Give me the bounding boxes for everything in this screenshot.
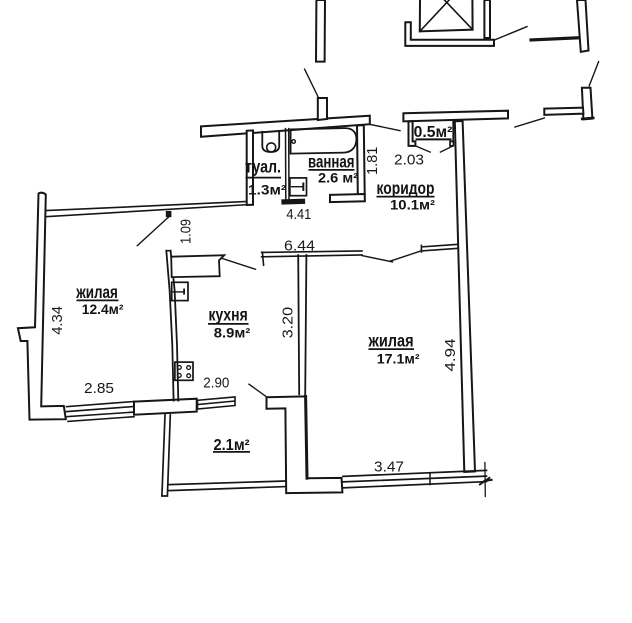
svg-text:2.03: 2.03	[394, 152, 424, 169]
svg-text:коридор: коридор	[377, 178, 435, 198]
svg-text:10.1м²: 10.1м²	[390, 198, 436, 213]
svg-text:12.4м²: 12.4м²	[82, 302, 124, 317]
svg-text:6.44: 6.44	[284, 238, 315, 255]
svg-text:4.34: 4.34	[49, 306, 66, 335]
svg-text:4.41: 4.41	[286, 206, 311, 223]
svg-text:кухня: кухня	[209, 304, 248, 324]
svg-text:3.20: 3.20	[280, 307, 297, 338]
svg-text:1.81: 1.81	[364, 147, 381, 175]
svg-text:3.47: 3.47	[374, 459, 404, 476]
svg-text:туал.: туал.	[245, 157, 281, 177]
svg-text:4.94: 4.94	[442, 339, 459, 372]
svg-text:1.3м²: 1.3м²	[248, 182, 287, 197]
svg-text:2.6 м²: 2.6 м²	[318, 171, 359, 186]
svg-text:17.1м²: 17.1м²	[377, 352, 420, 367]
svg-text:2.85: 2.85	[84, 380, 114, 397]
svg-text:1.09: 1.09	[178, 219, 195, 244]
svg-text:2.90: 2.90	[203, 375, 229, 392]
svg-text:8.9м²: 8.9м²	[214, 326, 251, 341]
svg-text:жилая: жилая	[75, 282, 117, 302]
svg-text:ванная: ванная	[308, 152, 355, 172]
svg-text:жилая: жилая	[368, 331, 414, 351]
